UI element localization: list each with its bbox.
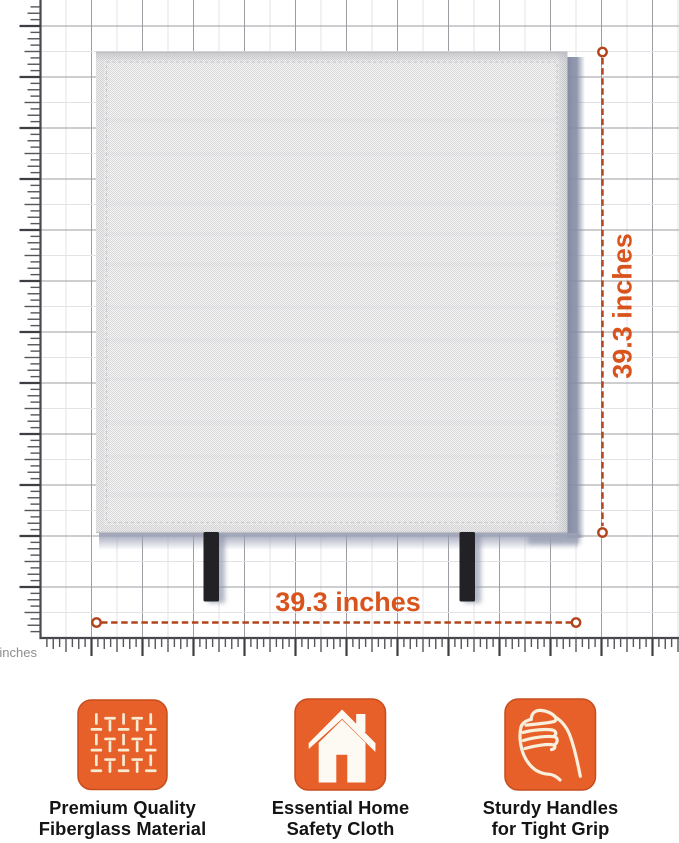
svg-text:39.3 inches: 39.3 inches: [275, 587, 421, 617]
svg-text:inches: inches: [0, 645, 38, 660]
svg-text:39.3 inches: 39.3 inches: [608, 233, 638, 379]
